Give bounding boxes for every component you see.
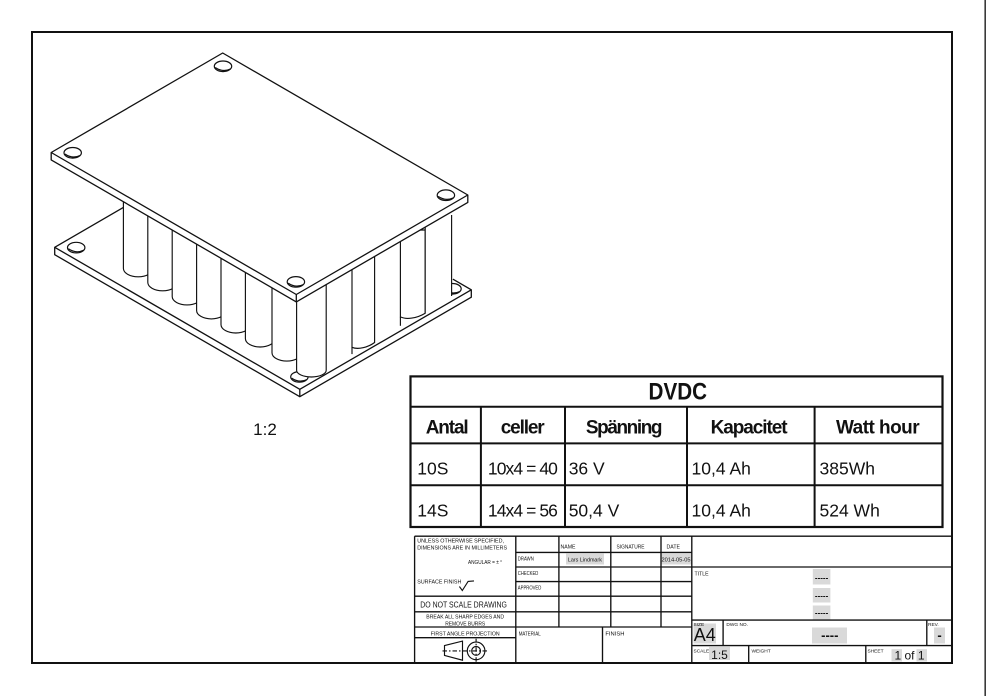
svg-text:10S: 10S [417, 459, 448, 479]
svg-text:REMOVE BURRS: REMOVE BURRS [445, 621, 485, 627]
svg-text:1 of 1: 1 of 1 [894, 649, 924, 663]
svg-text:Lars Lindmark: Lars Lindmark [568, 557, 602, 563]
svg-text:1:2: 1:2 [253, 420, 277, 439]
svg-text:10,4 Ah: 10,4 Ah [692, 501, 751, 521]
svg-text:-: - [937, 628, 941, 643]
svg-text:DO NOT SCALE DRAWING: DO NOT SCALE DRAWING [420, 600, 507, 609]
svg-text:DVDC: DVDC [649, 379, 708, 406]
svg-text:A4: A4 [694, 625, 716, 645]
svg-text:Kapacitet: Kapacitet [711, 418, 789, 439]
svg-text:UNLESS OTHERWISE SPECIFIED,: UNLESS OTHERWISE SPECIFIED, [417, 538, 504, 544]
svg-text:SHEET: SHEET [868, 649, 884, 655]
svg-text:SCALE: SCALE [694, 649, 710, 655]
svg-text:CHECKED: CHECKED [518, 571, 539, 577]
svg-text:385Wh: 385Wh [820, 459, 875, 479]
svg-text:Spänning: Spänning [586, 418, 663, 439]
svg-text:----: ---- [821, 628, 838, 643]
svg-text:14S: 14S [417, 501, 448, 521]
svg-text:APPROVED: APPROVED [518, 585, 542, 591]
svg-text:DWG NO.: DWG NO. [726, 622, 748, 628]
svg-text:2014-05-05: 2014-05-05 [662, 557, 691, 563]
svg-text:TITLE: TITLE [695, 571, 710, 577]
svg-text:-----: ----- [815, 609, 829, 618]
svg-text:524 Wh: 524 Wh [820, 501, 880, 521]
svg-text:SURFACE FINISH: SURFACE FINISH [417, 579, 461, 585]
svg-text:DIMENSIONS ARE IN MILLIMETERS: DIMENSIONS ARE IN MILLIMETERS [417, 545, 507, 551]
svg-text:Antal: Antal [426, 418, 469, 439]
svg-text:10,4 Ah: 10,4 Ah [692, 459, 751, 479]
svg-text:DRAWN: DRAWN [518, 556, 534, 562]
svg-text:-----: ----- [815, 574, 829, 583]
svg-text:FIRST ANGLE PROJECTION: FIRST ANGLE PROJECTION [431, 631, 500, 637]
svg-text:50,4 V: 50,4 V [569, 501, 620, 521]
svg-text:FINISH: FINISH [605, 631, 624, 637]
svg-text:SIGNATURE: SIGNATURE [617, 544, 645, 550]
svg-text:-----: ----- [815, 592, 829, 601]
svg-text:celler: celler [501, 418, 546, 439]
svg-text:ANGULAR = ± °: ANGULAR = ± ° [468, 560, 502, 566]
svg-text:14x4 = 56: 14x4 = 56 [488, 501, 558, 521]
svg-text:BREAK ALL SHARP EDGES AND: BREAK ALL SHARP EDGES AND [426, 614, 504, 620]
svg-text:1:5: 1:5 [711, 648, 728, 662]
svg-text:DATE: DATE [667, 544, 681, 550]
svg-text:36 V: 36 V [569, 459, 605, 479]
svg-text:WEIGHT: WEIGHT [752, 649, 771, 655]
svg-text:NAME: NAME [561, 544, 577, 550]
svg-text:10x4 = 40: 10x4 = 40 [488, 459, 558, 479]
svg-text:Watt hour: Watt hour [836, 418, 920, 439]
svg-text:MATERIAL: MATERIAL [519, 631, 541, 637]
